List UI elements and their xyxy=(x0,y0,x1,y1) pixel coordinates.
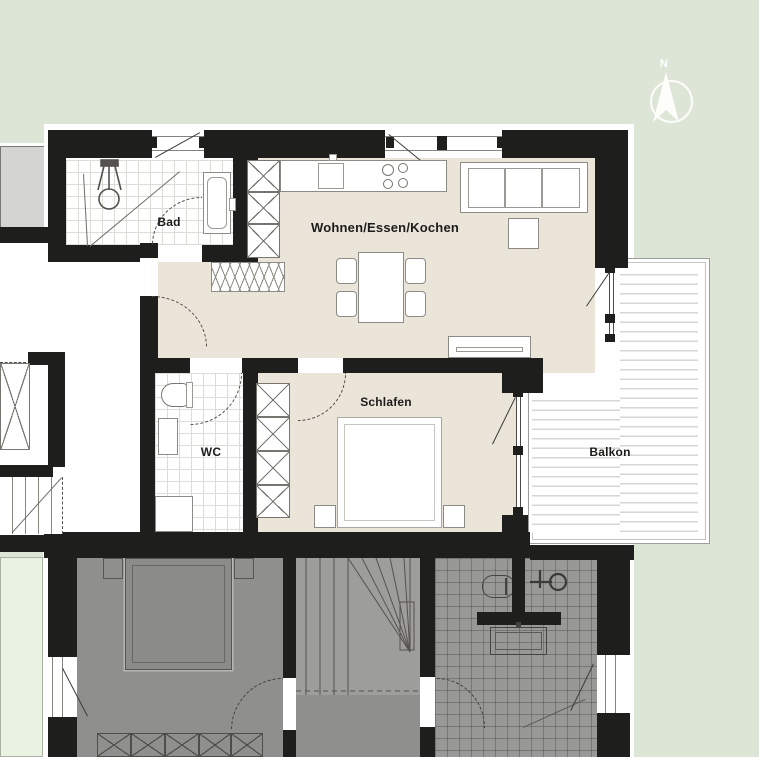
dining-chair xyxy=(405,258,426,284)
room-label-wc: WC xyxy=(188,445,234,459)
balcony-deck-right xyxy=(620,266,698,535)
sofa-seat xyxy=(505,168,542,208)
bedroom-wardrobe xyxy=(256,383,290,417)
glass-schlafen-post xyxy=(513,446,523,455)
window-lower-right-frame xyxy=(605,655,606,713)
room-label-bad: Bad xyxy=(140,215,198,229)
wc-storage-box xyxy=(155,496,193,532)
bedroom-wardrobe xyxy=(256,417,290,451)
balcony-deck-left xyxy=(532,392,620,533)
wall-under-balcony xyxy=(530,545,634,560)
window-lower-left-frame xyxy=(62,657,63,717)
lower-wardrobe-segment xyxy=(199,733,231,757)
door-gap-schlafen xyxy=(298,358,343,373)
wall-bad-bottom-a xyxy=(48,245,152,262)
lower-bed-inner xyxy=(132,565,225,663)
lower-wardrobe-segment xyxy=(131,733,165,757)
wall-right-living xyxy=(595,130,628,268)
lower-shower-icon xyxy=(526,566,570,606)
dining-chair xyxy=(405,291,426,317)
elevator-shaft xyxy=(0,363,30,450)
sofa-seat xyxy=(542,168,580,208)
keyline-lower-right xyxy=(630,545,634,757)
bad-sink-faucet xyxy=(229,198,236,211)
wall-neighbor-cap xyxy=(0,227,48,243)
glass-wall-living xyxy=(609,268,614,340)
sofa-seat xyxy=(468,168,505,208)
door-gap-lower-bath xyxy=(420,677,435,727)
lower-wardrobe-segment xyxy=(165,733,199,757)
lower-wardrobe-segment xyxy=(231,733,263,757)
window-bad-stop xyxy=(199,137,206,148)
wall-bottom-band xyxy=(44,532,530,558)
glass-living-post xyxy=(605,264,615,273)
compass-arrow-icon xyxy=(652,70,692,128)
door-gap-entrance xyxy=(140,258,158,296)
window-bad-frame xyxy=(152,150,204,151)
nightstand-right xyxy=(443,505,465,528)
lower-wardrobe-segment xyxy=(97,733,131,757)
window-kitchen-mullion xyxy=(437,136,447,150)
lower-balcony-strip xyxy=(0,557,43,757)
cooktop-burner xyxy=(382,164,394,176)
glass-schlafen-post xyxy=(513,507,523,516)
door-gap-bad xyxy=(152,245,202,262)
bad-sink-basin xyxy=(207,177,227,229)
kitchen-faucet xyxy=(329,154,337,161)
wc-toilet-icon xyxy=(161,383,188,407)
keyline-strip xyxy=(43,548,48,757)
wall-left-upper xyxy=(48,130,66,245)
neighbor-block xyxy=(0,146,47,228)
room-label-balkon: Balkon xyxy=(572,445,648,459)
wall-corner-schlafen-se xyxy=(502,515,528,532)
cooktop-burner xyxy=(398,178,408,188)
cooktop-burner xyxy=(383,179,393,189)
wc-cabinet xyxy=(158,418,178,455)
wall-core-3 xyxy=(0,465,53,477)
bedroom-wardrobe xyxy=(256,485,290,518)
lower-sink-inner xyxy=(495,632,542,650)
bedroom-wardrobe xyxy=(256,451,290,485)
lower-sink xyxy=(490,627,547,655)
glass-schlafen-post xyxy=(513,388,523,397)
cooktop-burner xyxy=(398,163,408,173)
room-label-schlafen: Schlafen xyxy=(348,395,424,409)
lower-bath-partition-vertical xyxy=(512,558,525,616)
window-kitchen-frame xyxy=(385,150,502,151)
nightstand-left xyxy=(314,505,336,528)
floor-plan-canvas: N xyxy=(0,0,759,757)
coat-rack xyxy=(211,262,285,292)
wall-top xyxy=(48,130,628,158)
kitchen-sink xyxy=(318,163,344,189)
stairwell-lower xyxy=(296,558,420,695)
wall-wc-left xyxy=(140,373,155,532)
door-gap-wc xyxy=(190,358,242,373)
lower-toilet-icon xyxy=(482,575,515,598)
coffee-table xyxy=(508,218,539,249)
dining-chair xyxy=(336,291,357,317)
winder-stairs-icon xyxy=(296,558,420,695)
shower-head-icon xyxy=(88,156,132,218)
wall-lower-right xyxy=(597,545,630,757)
lower-toilet-tank-line xyxy=(505,578,507,595)
lower-nightstand-right xyxy=(234,558,254,579)
dining-chair xyxy=(336,258,357,284)
window-lower-right xyxy=(597,655,630,713)
bed xyxy=(337,417,442,528)
window-bad-frame xyxy=(152,136,204,137)
wall-core-2 xyxy=(48,352,65,467)
kitchen-counter xyxy=(280,160,447,192)
glass-living-post xyxy=(605,314,615,323)
lower-nightstand-left xyxy=(103,558,123,579)
dining-table xyxy=(358,252,404,323)
compass-north-label: N xyxy=(646,58,682,70)
lower-bed xyxy=(125,558,232,670)
window-bad-stop xyxy=(150,137,157,148)
door-gap-lower-bedroom xyxy=(283,678,296,730)
window-kitchen-stop xyxy=(497,137,504,148)
bed-mattress xyxy=(344,424,435,521)
wall-lower-left xyxy=(44,545,77,757)
lower-sink-faucet xyxy=(516,622,521,628)
sideboard-drawer xyxy=(456,347,523,352)
kitchen-tall-cabinet xyxy=(247,160,280,192)
glass-living-post xyxy=(605,334,615,342)
wall-core-4 xyxy=(0,535,57,552)
window-lower-right-frame xyxy=(615,655,616,713)
window-lower-left-frame xyxy=(52,657,53,717)
room-label-wohnen: Wohnen/Essen/Kochen xyxy=(275,220,495,235)
